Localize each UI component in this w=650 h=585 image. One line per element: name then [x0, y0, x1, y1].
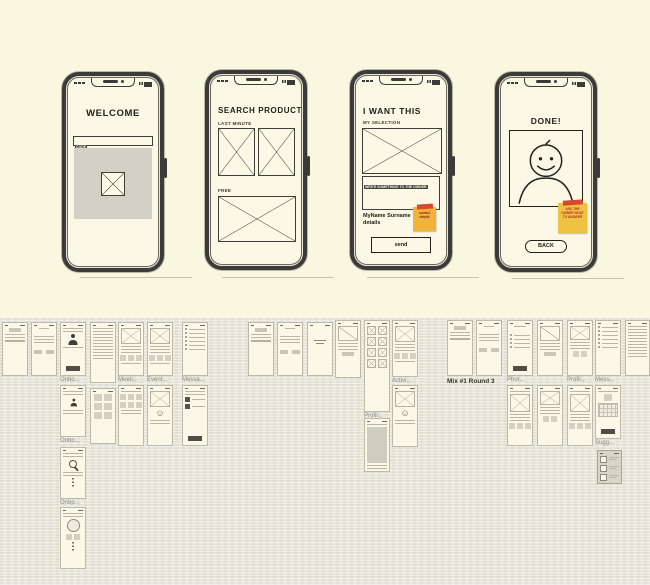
tape-icon: [562, 199, 583, 205]
canvas-frames: Mix #1 Round 3 Onbo...Meeti...Event...Me…: [0, 318, 650, 585]
phone-baseline: [222, 277, 334, 278]
status-icons-left: [362, 79, 373, 82]
speaker-icon: [246, 78, 261, 81]
sticky-note-contact: contact details: [413, 207, 436, 231]
product-card[interactable]: [258, 128, 295, 176]
canvas-frame[interactable]: [147, 322, 173, 376]
section-label-free: FREE: [218, 188, 231, 193]
side-button: [164, 158, 167, 178]
status-icons-right: [139, 81, 152, 87]
contact-details-word: details: [363, 220, 411, 227]
textarea-placeholder: WRITE SOMETHING TO THE OWNER: [364, 185, 428, 190]
canvas-frame[interactable]: [537, 320, 563, 376]
product-card[interactable]: [218, 128, 255, 176]
canvas-frame[interactable]: [90, 322, 116, 383]
camera-icon: [264, 78, 267, 81]
sticky-note-answer: ASK THE OWNER WHAT TO ANSWER: [558, 203, 587, 233]
canvas-frame-label: Event...: [147, 377, 167, 383]
canvas-frame[interactable]: ☺: [392, 385, 418, 447]
canvas-frame[interactable]: [567, 385, 593, 446]
phone-mockup-done: DONE! ASK THE OWNER WHAT TO ANSWER: [495, 72, 597, 272]
subtitle-my-selection: MY SELECTION: [363, 120, 400, 125]
wireframe-poster: WELCOME CODE SEARCH PRODUCT LAST MINUTE …: [0, 0, 650, 318]
owner-photo-frame: [509, 130, 583, 207]
canvas-frame[interactable]: [182, 385, 208, 446]
page-title: I WANT THIS: [363, 106, 421, 116]
canvas-frame[interactable]: [60, 322, 86, 376]
canvas-frame[interactable]: [625, 320, 650, 376]
canvas-frame[interactable]: [537, 385, 563, 446]
canvas-frame[interactable]: [2, 322, 28, 376]
canvas-frame-label: Onbo...: [60, 500, 80, 506]
canvas-frame-label: Profil...: [567, 377, 586, 383]
side-button: [307, 156, 310, 176]
canvas-frame[interactable]: [597, 450, 622, 484]
phone-notch: [524, 77, 568, 87]
canvas-frame[interactable]: [392, 320, 418, 377]
canvas-frame[interactable]: ☺: [147, 385, 173, 446]
phone-notch: [234, 75, 278, 85]
status-icons-left: [217, 79, 228, 82]
speaker-icon: [103, 80, 118, 83]
contact-name-block: MyName Surname details: [363, 213, 411, 227]
image-placeholder-panel: [74, 148, 152, 219]
screen-done: DONE! ASK THE OWNER WHAT TO ANSWER: [500, 77, 592, 267]
camera-icon: [409, 78, 412, 81]
canvas-frame-label: Onbo...: [60, 377, 80, 383]
side-button: [597, 158, 600, 178]
canvas-frame[interactable]: [118, 385, 144, 446]
page-title: SEARCH PRODUCT: [218, 106, 302, 115]
canvas-frame[interactable]: [507, 385, 533, 446]
canvas-frame[interactable]: [60, 447, 86, 499]
phone-mockup-welcome: WELCOME CODE: [62, 72, 164, 272]
canvas-frame[interactable]: [307, 322, 333, 376]
camera-icon: [554, 80, 557, 83]
canvas-frame[interactable]: [182, 322, 208, 376]
code-input[interactable]: CODE: [73, 136, 153, 146]
canvas-frame[interactable]: [476, 320, 502, 376]
sticky-note-text: ASK THE OWNER WHAT TO ANSWER: [559, 207, 586, 219]
screen-search: SEARCH PRODUCT LAST MINUTE FREE: [210, 75, 302, 265]
phone-baseline: [367, 277, 479, 278]
phone-mockup-search: SEARCH PRODUCT LAST MINUTE FREE: [205, 70, 307, 270]
canvas-frame-label: Onbo...: [60, 438, 80, 444]
phone-notch: [91, 77, 135, 87]
status-icons-left: [74, 81, 85, 84]
canvas-frame[interactable]: [507, 320, 533, 376]
back-button[interactable]: BACK: [525, 240, 567, 253]
phone-mockup-want: I WANT THIS MY SELECTION WRITE SOMETHING…: [350, 70, 452, 270]
canvas-frame-label: Sugg...: [595, 440, 614, 446]
design-canvas: Mix #1 Round 3 Onbo...Meeti...Event...Me…: [0, 318, 650, 585]
canvas-frame[interactable]: [60, 385, 86, 437]
status-icons-left: [507, 81, 518, 84]
canvas-frame[interactable]: [60, 507, 86, 569]
canvas-frame-label: Phot...: [507, 377, 524, 383]
phone-baseline: [512, 278, 624, 279]
canvas-frame[interactable]: [90, 388, 116, 444]
canvas-frame[interactable]: [595, 385, 621, 439]
canvas-frame[interactable]: [595, 320, 621, 376]
canvas-frame-label: Mess...: [595, 377, 614, 383]
camera-icon: [121, 80, 124, 83]
canvas-frame[interactable]: [31, 322, 57, 376]
smiley-person-icon: [510, 131, 582, 206]
canvas-frame[interactable]: [248, 322, 274, 376]
tape-icon: [416, 203, 432, 209]
canvas-frame[interactable]: [447, 320, 473, 376]
speaker-icon: [536, 80, 551, 83]
canvas-frame-label: Meeti...: [118, 377, 138, 383]
product-card-wide[interactable]: [218, 196, 296, 242]
status-icons-right: [427, 79, 440, 85]
canvas-frame[interactable]: [335, 320, 361, 378]
canvas-frame-label: Activi...: [392, 378, 411, 384]
section-label-last-minute: LAST MINUTE: [218, 121, 252, 126]
screen-want: I WANT THIS MY SELECTION WRITE SOMETHING…: [355, 75, 447, 265]
contact-name: MyName Surname: [363, 213, 411, 220]
canvas-frame-label: Messa...: [182, 377, 205, 383]
selected-product-image: [362, 128, 442, 174]
page-title: WELCOME: [86, 108, 140, 119]
phone-baseline: [80, 277, 192, 278]
canvas-frame[interactable]: [567, 320, 593, 376]
canvas-note: Mix #1 Round 3: [447, 378, 495, 385]
sticky-note-text: contact details: [414, 211, 435, 219]
canvas-frame[interactable]: [364, 418, 390, 472]
page-title: DONE!: [531, 116, 561, 126]
canvas-frame[interactable]: [364, 320, 390, 412]
status-icons-right: [572, 81, 585, 87]
speaker-icon: [391, 78, 406, 81]
phone-notch: [379, 75, 423, 85]
canvas-frame[interactable]: [277, 322, 303, 376]
canvas-frame[interactable]: [118, 322, 144, 376]
image-x-icon: [101, 172, 125, 196]
side-button: [452, 156, 455, 176]
status-icons-right: [282, 79, 295, 85]
screen-welcome: WELCOME CODE: [67, 77, 159, 267]
send-button[interactable]: send: [371, 237, 431, 253]
